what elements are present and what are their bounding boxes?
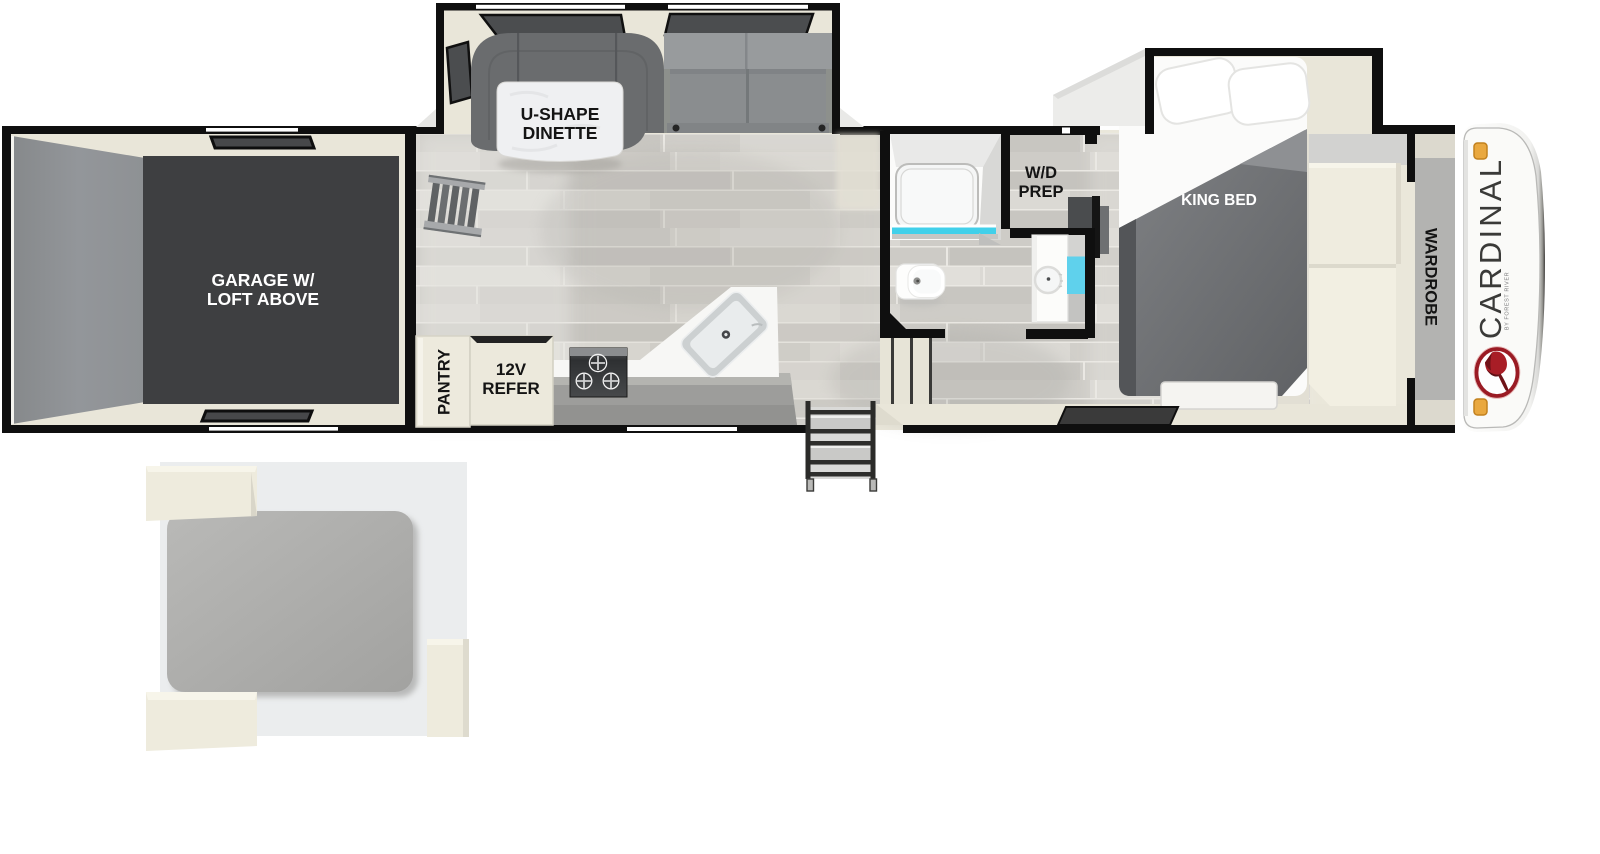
svg-text:CARDINAL: CARDINAL — [1473, 157, 1508, 339]
svg-text:PANTRY: PANTRY — [435, 349, 453, 415]
svg-text:REFER: REFER — [482, 379, 540, 398]
svg-text:PREP: PREP — [1019, 183, 1064, 201]
svg-text:LOFT ABOVE: LOFT ABOVE — [207, 289, 319, 309]
svg-text:DINETTE: DINETTE — [523, 123, 598, 143]
svg-text:GARAGE W/: GARAGE W/ — [211, 270, 314, 290]
svg-text:KING BED: KING BED — [1181, 192, 1257, 209]
svg-text:BY FOREST RIVER: BY FOREST RIVER — [1504, 272, 1510, 330]
svg-text:W/D: W/D — [1025, 164, 1057, 182]
svg-text:WARDROBE: WARDROBE — [1422, 228, 1440, 326]
svg-text:12V: 12V — [496, 360, 527, 379]
svg-text:U-SHAPE: U-SHAPE — [521, 104, 600, 124]
